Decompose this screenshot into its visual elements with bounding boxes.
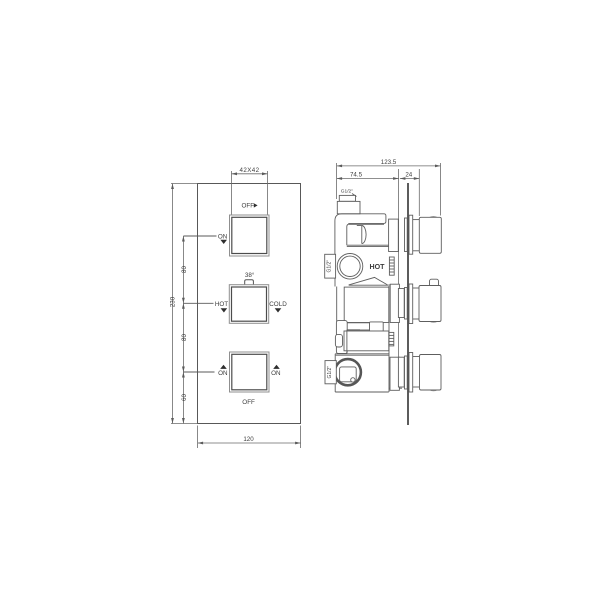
svg-text:ON: ON — [271, 370, 281, 377]
svg-text:74.5: 74.5 — [350, 172, 363, 179]
svg-text:60: 60 — [181, 394, 188, 401]
svg-text:ON: ON — [218, 233, 228, 240]
svg-text:HOT: HOT — [215, 301, 228, 308]
svg-text:24: 24 — [405, 172, 412, 179]
svg-text:OFF: OFF — [242, 399, 255, 406]
svg-text:120: 120 — [243, 436, 254, 443]
svg-text:G1/2": G1/2" — [341, 189, 353, 195]
svg-text:230: 230 — [170, 296, 177, 307]
svg-text:OFF: OFF — [242, 203, 255, 210]
svg-text:123.5: 123.5 — [381, 159, 397, 166]
svg-text:80: 80 — [181, 334, 188, 341]
svg-text:80: 80 — [181, 266, 188, 273]
svg-text:G1/2": G1/2" — [326, 260, 332, 273]
svg-text:42X42: 42X42 — [240, 167, 260, 174]
svg-text:G1/2": G1/2" — [327, 366, 333, 379]
svg-text:COLD: COLD — [269, 301, 287, 308]
svg-text:38°: 38° — [245, 271, 255, 279]
svg-text:ON: ON — [218, 370, 228, 377]
svg-text:HOT: HOT — [370, 263, 386, 271]
